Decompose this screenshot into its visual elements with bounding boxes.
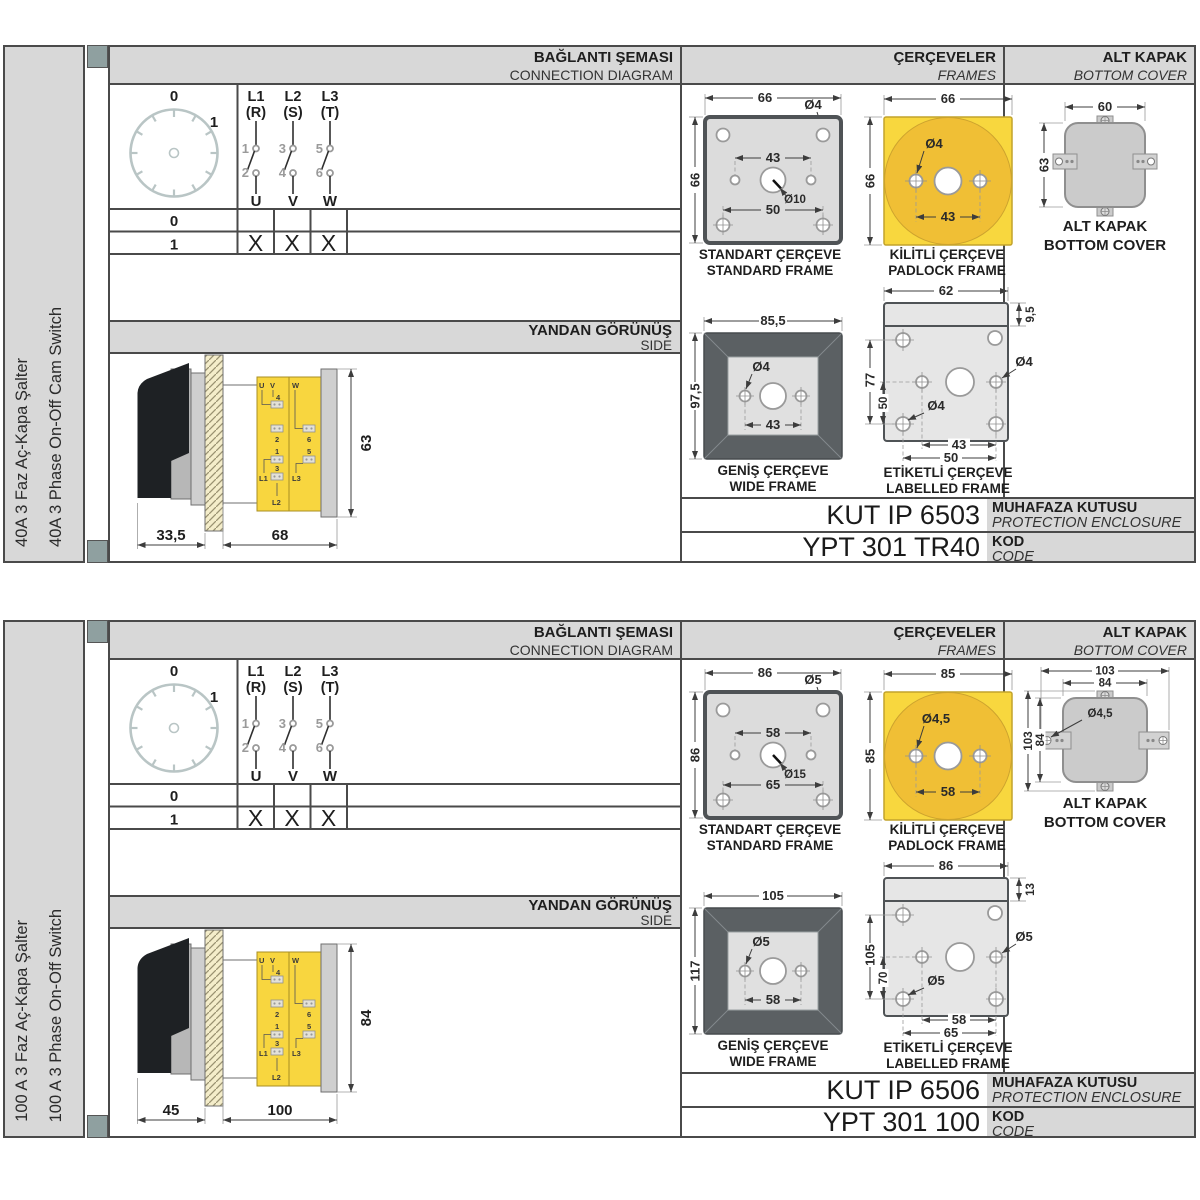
dim: Ø4 [927,398,945,413]
dial-ticks [131,685,218,772]
contact-num: 2 [242,165,249,180]
phase-name: (R) [246,105,266,121]
enclosure-code: KUT IP 6506 [680,1074,987,1106]
panel-100a: 100 A 3 Faz Aç-Kapa Şalter 100 A 3 Phase… [0,620,1200,1138]
wide-frame-drawing: 105 Ø5 58 117 [688,888,858,1038]
side-view-header: YANDAN GÖRÜNÜŞ SIDE [110,320,680,354]
product-title-en: 100 A 3 Phase On-Off Switch [47,909,66,1122]
bottom-cover-drawing: 103 84 Ø4,5 103 84 [1020,664,1190,790]
contact-num: 2 [242,740,249,755]
section-header-connection: BAĞLANTI ŞEMASI CONNECTION DIAGRAM [110,47,680,85]
phase-name: (T) [321,105,340,121]
phase-column-l3: L3 (T) 5 6 W [316,664,340,785]
phase-line: L1 [248,664,265,680]
header-en: FRAMES [682,67,996,83]
wide-frame-drawing: 85,5 Ø4 43 97,5 [688,313,858,463]
contact-num: 5 [316,141,323,156]
corner-square [87,1115,108,1138]
phase-out: V [288,768,298,785]
svg-text:6: 6 [307,435,311,444]
phase-column-l2: L2 (S) 3 4 V [279,89,303,210]
dim: 105 [762,888,784,903]
svg-text:U: U [259,956,264,965]
table-mark: X [321,805,336,831]
svg-text:3: 3 [275,464,279,473]
section-header-cover: ALT KAPAK BOTTOM COVER [1003,47,1194,85]
enclosure-code: KUT IP 6503 [680,499,987,531]
code-label: KOD CODE [987,1108,1194,1136]
contact-num: 4 [279,165,287,180]
product-code: YPT 301 TR40 [680,533,987,561]
dim: 13 [1025,883,1037,896]
standard-frame-caption: STANDART ÇERÇEVESTANDARD FRAME [685,247,855,279]
contact-num: 3 [279,141,286,156]
dim: 97,5 [688,383,703,408]
dim: 66 [758,90,772,105]
dim-height: 84 [358,1009,375,1026]
phase-line: L1 [248,89,265,105]
header-tr: ÇERÇEVELER [682,49,996,67]
header-en: CONNECTION DIAGRAM [110,642,673,658]
product-title-tr: 100 A 3 Faz Aç-Kapa Şalter [13,920,32,1122]
product-code: YPT 301 100 [680,1108,987,1136]
header-en: FRAMES [682,642,996,658]
header-tr: BAĞLANTI ŞEMASI [110,624,673,642]
corner-square [87,45,108,68]
corner-square [87,620,108,643]
side-view-drawing: U V 4 2 1 3 L1 L2 W 6 5 [125,353,605,561]
table-mark: X [248,805,263,831]
labelled-frame-drawing: 86 13 Ø5 Ø5 105 70 [856,858,1040,1040]
dim: 84 [1035,733,1047,746]
phase-column-l1: L1 (R) 1 2 U [242,89,266,210]
dim: 84 [1099,678,1112,690]
row-label: 0 [170,788,178,805]
dim: 58 [941,784,955,799]
dim: 105 [863,944,878,966]
phase-line: L2 [285,664,302,680]
enclosure-label: MUHAFAZA KUTUSU PROTECTION ENCLOSURE [987,499,1194,531]
dim: 66 [688,173,703,187]
product-code-row: YPT 301 TR40 KOD CODE [680,531,1194,561]
side-view-title-tr: YANDAN GÖRÜNÜŞ [110,322,672,339]
header-en: CONNECTION DIAGRAM [110,67,673,83]
row-label: 0 [170,213,178,230]
dim: 86 [758,665,772,680]
svg-text:L1: L1 [259,1049,268,1058]
svg-text:W: W [292,381,300,390]
section-header-cover: ALT KAPAK BOTTOM COVER [1003,622,1194,660]
dim: Ø4,5 [922,711,950,726]
wide-frame-caption: GENİŞ ÇERÇEVEWIDE FRAME [688,463,858,495]
section-header-connection: BAĞLANTI ŞEMASI CONNECTION DIAGRAM [110,622,680,660]
dim: 58 [766,992,780,1007]
dim: 65 [766,777,780,792]
svg-text:3: 3 [275,1039,279,1048]
dim: 43 [766,417,780,432]
dim-height: 63 [358,435,375,452]
header-tr: ÇERÇEVELER [682,624,996,642]
dim: 60 [1098,99,1112,114]
mounting-panel [205,355,223,531]
phase-column-l2: L2 (S) 3 4 V [279,664,303,785]
contact-num: 1 [242,141,249,156]
svg-text:L2: L2 [272,498,281,507]
panel-body: BAĞLANTI ŞEMASI CONNECTION DIAGRAM ÇERÇE… [108,620,1196,1138]
connection-diagram: 0 1 L1 (R) 1 2 U L2 (S) [110,660,680,832]
phase-out: U [251,193,262,210]
contact-num: 6 [316,740,323,755]
standard-frame-drawing: 86 Ø5 58 Ø15 65 86 [685,664,855,822]
section-header-frames: ÇERÇEVELER FRAMES [680,47,1003,85]
phase-line: L3 [322,664,339,680]
dim: 9,5 [1025,306,1037,323]
labelled-frame-drawing: 62 9,5 Ø4 Ø4 77 50 [856,283,1040,465]
standard-frame-drawing: 66 Ø4 43 Ø10 50 66 [685,89,855,247]
dim: 65 [944,1025,958,1040]
dim: Ø5 [752,934,769,949]
dim-handle: 45 [163,1102,180,1119]
contact-num: 3 [279,716,286,731]
dim: 43 [941,209,955,224]
dim: 77 [863,373,878,387]
panel-40a: 40A 3 Faz Aç-Kapa Şalter 40A 3 Phase On-… [0,45,1200,563]
phase-name: (S) [283,680,303,696]
dim: 50 [766,202,780,217]
dim: 50 [878,397,890,410]
phase-out: W [323,768,338,785]
contact-num: 6 [316,165,323,180]
dim: 66 [941,91,955,106]
svg-text:1: 1 [275,447,279,456]
bottom-cover-drawing: 60 63 [1020,97,1190,215]
panel-body: BAĞLANTI ŞEMASI CONNECTION DIAGRAM ÇERÇE… [108,45,1196,563]
svg-text:2: 2 [275,1010,279,1019]
phase-line: L2 [285,89,302,105]
corner-square [87,540,108,563]
header-tr: ALT KAPAK [1005,49,1187,67]
contact-num: 4 [279,740,287,755]
dim: Ø4 [804,97,822,112]
side-view-header: YANDAN GÖRÜNÜŞ SIDE [110,895,680,929]
dim-handle: 33,5 [156,527,185,544]
svg-text:V: V [270,381,275,390]
dim: 63 [1037,158,1052,172]
dial-pos-0: 0 [170,663,178,680]
dim: 86 [688,748,703,762]
section-header-frames: ÇERÇEVELER FRAMES [680,622,1003,660]
divider [680,622,682,1136]
side-view-title-en: SIDE [110,339,672,353]
dim: 70 [878,972,890,985]
dim: 62 [939,283,953,298]
dim: 85 [941,666,955,681]
row-label: 1 [170,237,178,254]
header-en: BOTTOM COVER [1005,67,1187,83]
table-mark: X [321,230,336,256]
svg-text:L3: L3 [292,1049,301,1058]
table-mark: X [248,230,263,256]
contact-num: 1 [242,716,249,731]
labelled-frame-caption: ETİKETLİ ÇERÇEVELABELLED FRAME [856,465,1040,497]
dim: 103 [1023,731,1035,750]
dim: 66 [863,174,878,188]
dim: 117 [688,961,703,982]
dial-pos-1: 1 [210,689,218,706]
dim: Ø4 [925,136,943,151]
svg-text:W: W [292,956,300,965]
dim: 85 [863,749,878,763]
enclosure-label: MUHAFAZA KUTUSU PROTECTION ENCLOSURE [987,1074,1194,1106]
svg-text:L3: L3 [292,474,301,483]
bottom-cover-caption: ALT KAPAKBOTTOM COVER [1010,217,1200,255]
svg-text:L2: L2 [272,1073,281,1082]
dim: 85,5 [760,313,785,328]
dim: Ø4,5 [1088,708,1114,720]
svg-text:L1: L1 [259,474,268,483]
dim: 58 [766,725,780,740]
side-view-drawing: U V 4 2 1 3 L1 L2 W 6 5 [125,928,605,1136]
phase-column-l1: L1 (R) 1 2 U [242,664,266,785]
dial-pos-0: 0 [170,88,178,105]
table-mark: X [284,230,299,256]
svg-text:1: 1 [275,1022,279,1031]
side-view-title-tr: YANDAN GÖRÜNÜŞ [110,897,672,914]
contact-num: 5 [316,716,323,731]
header-en: BOTTOM COVER [1005,642,1187,658]
header-tr: BAĞLANTI ŞEMASI [110,49,673,67]
dim: Ø5 [804,672,821,687]
dim: Ø10 [784,194,806,206]
mounting-panel [205,930,223,1106]
svg-text:6: 6 [307,1010,311,1019]
phase-out: W [323,193,338,210]
code-label: KOD CODE [987,533,1194,561]
dim: Ø4 [1015,354,1033,369]
dim: Ø4 [752,359,770,374]
dim: Ø5 [927,973,944,988]
phase-out: V [288,193,298,210]
svg-text:2: 2 [275,435,279,444]
dim: 86 [939,858,953,873]
divider [680,47,682,561]
phase-name: (S) [283,105,303,121]
table-mark: X [284,805,299,831]
side-title-bar: 40A 3 Faz Aç-Kapa Şalter 40A 3 Phase On-… [3,45,85,563]
dial-ticks [131,110,218,197]
bottom-cover-caption: ALT KAPAKBOTTOM COVER [1010,794,1200,832]
svg-text:5: 5 [307,1022,311,1031]
header-tr: ALT KAPAK [1005,624,1187,642]
catalog-page: 40A 3 Faz Aç-Kapa Şalter 40A 3 Phase On-… [0,0,1200,1200]
labelled-frame-caption: ETİKETLİ ÇERÇEVELABELLED FRAME [856,1040,1040,1072]
product-code-row: YPT 301 100 KOD CODE [680,1106,1194,1136]
dim: 103 [1095,666,1114,678]
phase-name: (T) [321,680,340,696]
dim: 43 [766,150,780,165]
standard-frame-caption: STANDART ÇERÇEVESTANDARD FRAME [685,822,855,854]
wide-frame-caption: GENİŞ ÇERÇEVEWIDE FRAME [688,1038,858,1070]
side-view-title-en: SIDE [110,914,672,928]
svg-text:U: U [259,381,264,390]
svg-text:5: 5 [307,447,311,456]
dim-body: 100 [267,1102,292,1119]
dim: Ø5 [1015,929,1032,944]
row-label: 1 [170,812,178,829]
dim: Ø15 [784,769,806,781]
dim: 50 [944,450,958,465]
dial-pos-1: 1 [210,114,218,131]
side-title-bar: 100 A 3 Faz Aç-Kapa Şalter 100 A 3 Phase… [3,620,85,1138]
product-title-en: 40A 3 Phase On-Off Cam Switch [47,307,66,547]
phase-line: L3 [322,89,339,105]
svg-text:V: V [270,956,275,965]
phase-name: (R) [246,680,266,696]
enclosure-code-row: KUT IP 6506 MUHAFAZA KUTUSU PROTECTION E… [680,1072,1194,1106]
dim-body: 68 [272,527,289,544]
phase-column-l3: L3 (T) 5 6 W [316,89,340,210]
phase-out: U [251,768,262,785]
product-title-tr: 40A 3 Faz Aç-Kapa Şalter [13,358,32,547]
connection-diagram: 0 1 L1 (R) 1 2 U L2 (S) [110,85,680,257]
enclosure-code-row: KUT IP 6503 MUHAFAZA KUTUSU PROTECTION E… [680,497,1194,531]
